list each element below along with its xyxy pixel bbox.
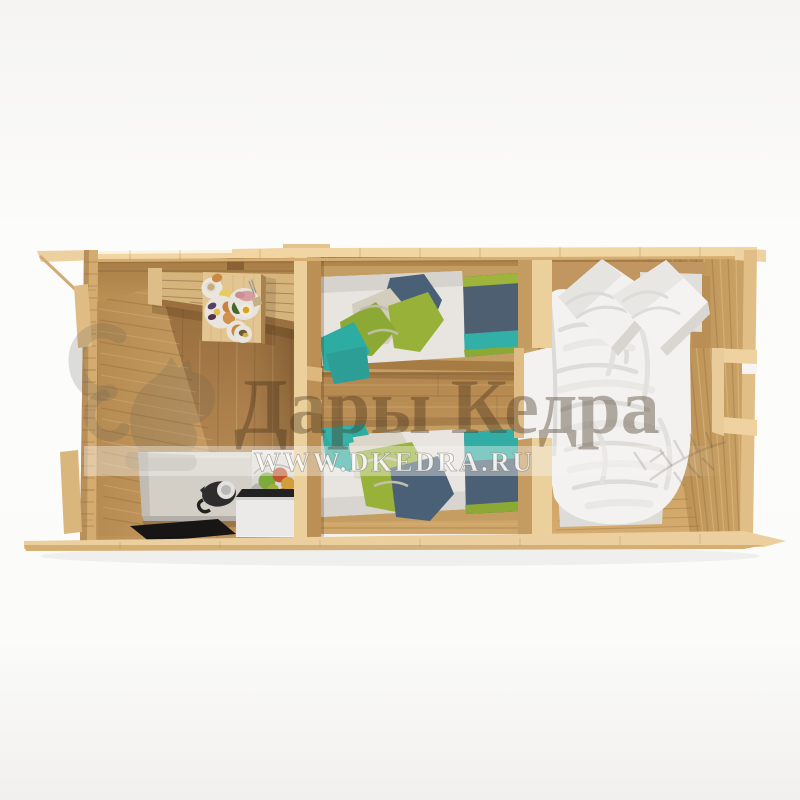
- svg-text:WWW.DKEDRA.RU: WWW.DKEDRA.RU: [254, 447, 535, 477]
- svg-text:Дары Кедра: Дары Кедра: [234, 363, 659, 450]
